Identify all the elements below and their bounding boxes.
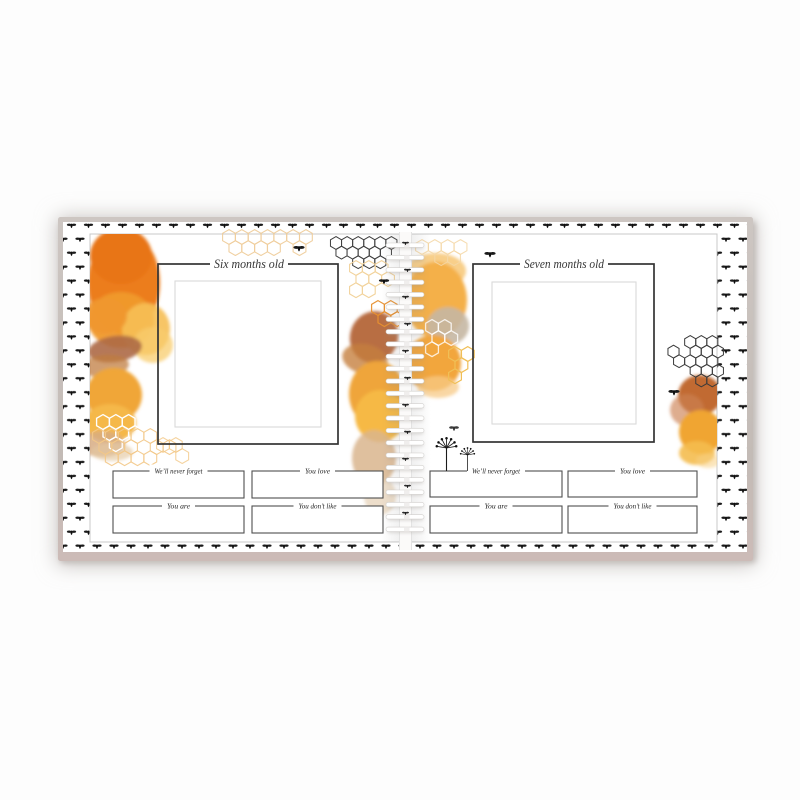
svg-text:We’ll never forget: We’ll never forget	[155, 467, 204, 476]
svg-text:You are: You are	[167, 502, 191, 511]
svg-text:Six months old: Six months old	[214, 256, 284, 271]
svg-text:You don’t like: You don’t like	[299, 502, 338, 511]
svg-text:We’ll never forget: We’ll never forget	[472, 467, 521, 476]
svg-text:You love: You love	[305, 467, 331, 476]
svg-text:You love: You love	[620, 467, 646, 476]
svg-text:Seven months old: Seven months old	[524, 256, 604, 271]
svg-text:You don’t like: You don’t like	[614, 502, 653, 511]
svg-text:You are: You are	[485, 502, 509, 511]
